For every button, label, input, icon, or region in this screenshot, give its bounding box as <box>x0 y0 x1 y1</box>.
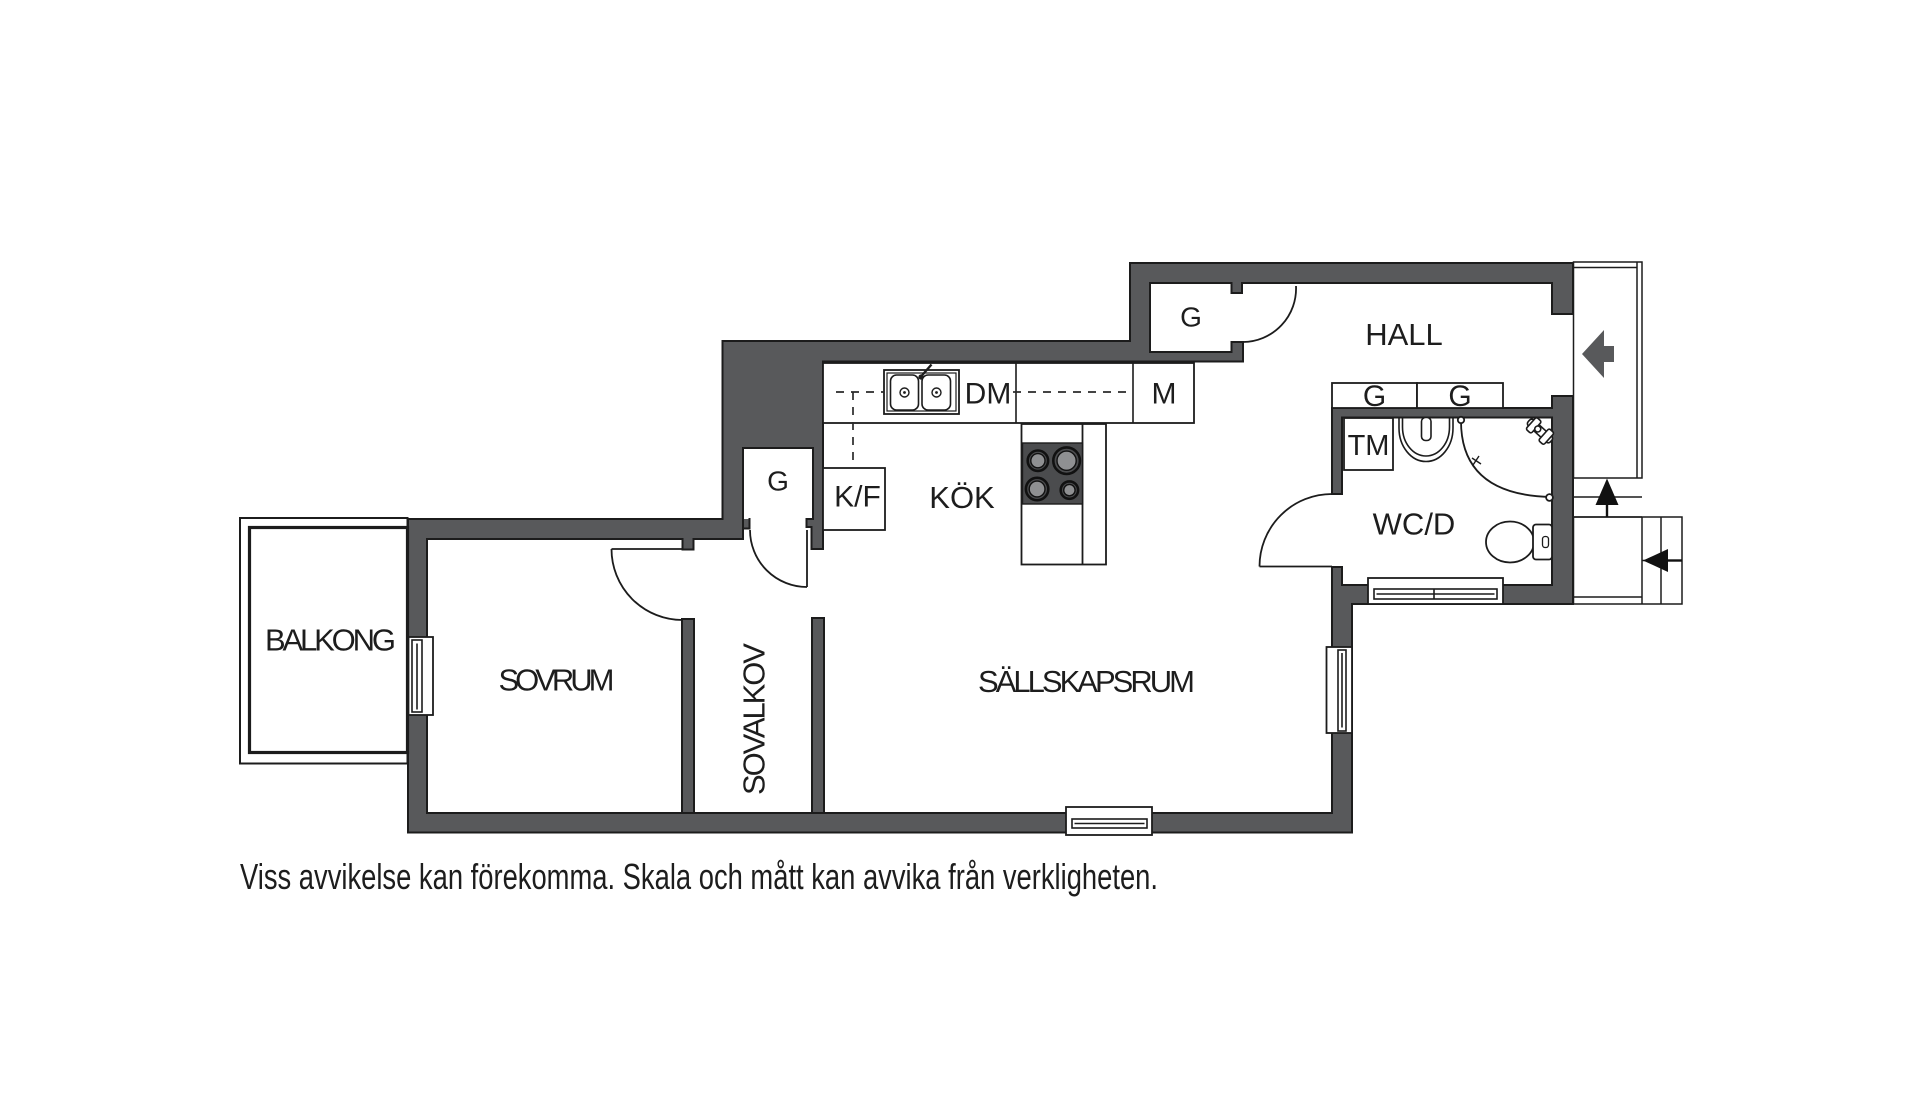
svg-text:G: G <box>1363 380 1386 413</box>
svg-text:WC/D: WC/D <box>1373 507 1456 542</box>
svg-text:KÖK: KÖK <box>929 480 995 515</box>
svg-text:Viss avvikelse kan förekomma.: Viss avvikelse kan förekomma. Skala och … <box>240 856 1158 897</box>
svg-text:K/F: K/F <box>834 481 881 514</box>
svg-text:TM: TM <box>1348 430 1390 462</box>
svg-text:HALL: HALL <box>1365 317 1443 352</box>
svg-text:M: M <box>1152 378 1177 411</box>
svg-text:SOVRUM: SOVRUM <box>499 663 615 698</box>
svg-text:G: G <box>1448 380 1471 413</box>
svg-text:BALKONG: BALKONG <box>265 623 396 658</box>
svg-text:G: G <box>1180 302 1202 333</box>
svg-text:SOVALKOV: SOVALKOV <box>737 643 772 795</box>
svg-text:G: G <box>767 466 789 497</box>
svg-text:DM: DM <box>965 378 1012 411</box>
svg-text:SÄLLSKAPSRUM: SÄLLSKAPSRUM <box>978 664 1195 699</box>
